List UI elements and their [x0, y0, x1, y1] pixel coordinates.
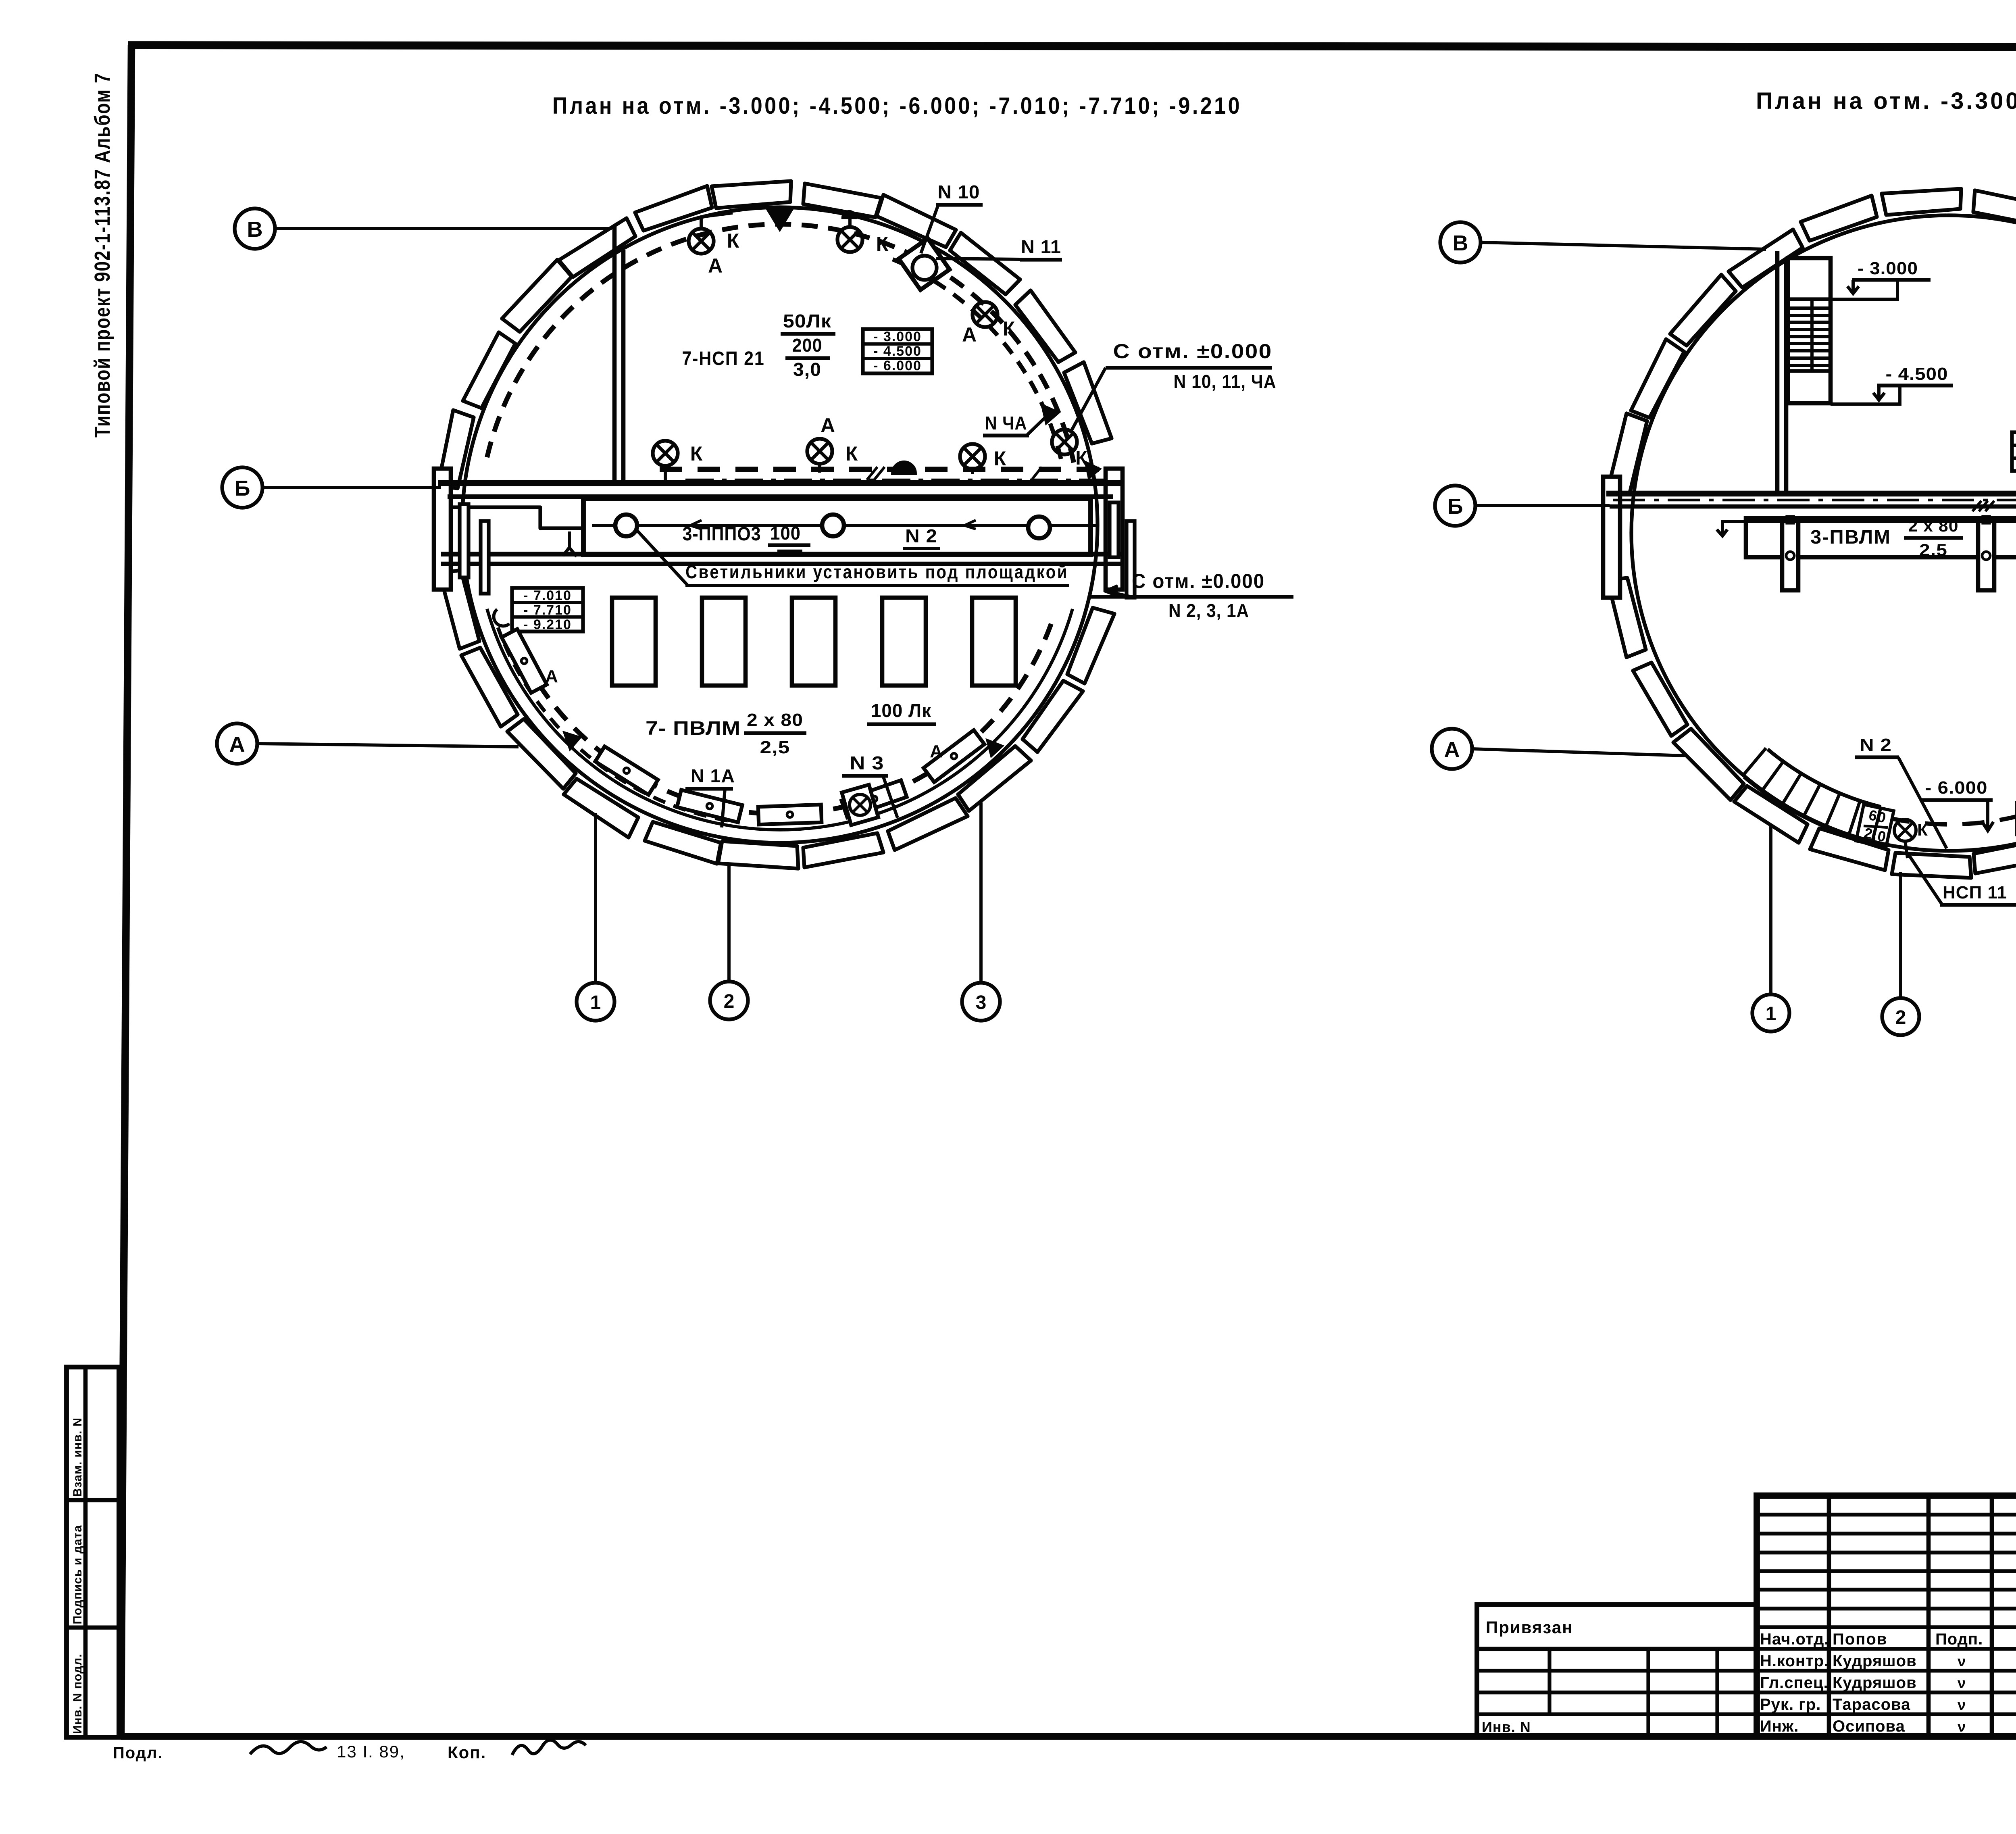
svg-text:А: А	[1444, 738, 1460, 762]
svg-text:3-ПППО3: 3-ПППО3	[683, 523, 761, 545]
svg-text:К: К	[846, 442, 858, 465]
svg-text:13 І. 89,: 13 І. 89,	[337, 1742, 405, 1761]
svg-text:А: А	[545, 667, 558, 686]
svg-text:N 2: N 2	[1860, 735, 1892, 755]
svg-text:План на отм. -3.000; -4.500;: План на отм. -3.000; -4.500; -6.000; -7.…	[552, 93, 1242, 119]
svg-text:С отм. ±0.000: С отм. ±0.000	[1113, 340, 1272, 363]
svg-text:К: К	[994, 447, 1006, 470]
svg-text:К: К	[690, 442, 703, 465]
svg-text:Рук. гр.: Рук. гр.	[1760, 1696, 1821, 1713]
svg-text:ν: ν	[1958, 1653, 1966, 1669]
svg-text:Инв. N подл.: Инв. N подл.	[71, 1654, 84, 1734]
svg-text:Коп.: Коп.	[448, 1743, 486, 1762]
svg-text:План на отм. -3.300; -4.000;: План на отм. -3.300; -4.000; -5.500	[1756, 88, 2016, 114]
svg-text:100: 100	[770, 523, 801, 544]
svg-text:2: 2	[724, 991, 735, 1012]
svg-text:- 4.500: - 4.500	[1886, 364, 1948, 384]
svg-text:- 6.000: - 6.000	[1925, 778, 1988, 798]
svg-text:Инв. N: Инв. N	[1482, 1719, 1531, 1735]
svg-text:2,5: 2,5	[760, 738, 790, 757]
svg-text:Типовой проект 902-1-113.87: Типовой проект 902-1-113.87 Альбом 7	[90, 73, 115, 438]
svg-text:N ЧА: N ЧА	[985, 413, 1027, 433]
svg-text:100 Лк: 100 Лк	[871, 700, 931, 721]
svg-text:2,5: 2,5	[1919, 540, 1947, 559]
svg-text:- 4.500: - 4.500	[873, 344, 922, 359]
svg-text:ν: ν	[1958, 1696, 1966, 1713]
svg-text:- 9.210: - 9.210	[523, 617, 572, 632]
svg-text:200: 200	[792, 335, 823, 356]
svg-text:Подл.: Подл.	[113, 1744, 163, 1762]
svg-text:Кудряшов: Кудряшов	[1833, 1674, 1917, 1692]
svg-text:3: 3	[976, 992, 987, 1013]
svg-text:Б: Б	[1447, 494, 1463, 519]
svg-text:N 3: N 3	[850, 752, 884, 773]
svg-text:Тарасова: Тарасова	[1833, 1696, 1910, 1713]
svg-text:А: А	[930, 742, 943, 761]
svg-text:В: В	[247, 217, 263, 242]
svg-text:В: В	[1453, 231, 1468, 255]
svg-text:Светильники установить под: Светильники установить под площадкой	[685, 561, 1068, 582]
svg-text:К: К	[1003, 317, 1015, 340]
svg-text:Гл.спец.: Гл.спец.	[1760, 1674, 1829, 1692]
svg-text:- 7.710: - 7.710	[523, 602, 572, 618]
svg-text:Кудряшов: Кудряшов	[1833, 1652, 1917, 1670]
svg-text:1: 1	[1766, 1003, 1776, 1025]
svg-text:Б: Б	[235, 476, 250, 500]
svg-text:7- ПВЛМ: 7- ПВЛМ	[646, 718, 741, 739]
svg-text:- 6.000: - 6.000	[873, 358, 922, 373]
svg-text:3,0: 3,0	[793, 359, 821, 380]
svg-text:50Лк: 50Лк	[783, 311, 831, 331]
svg-text:1: 1	[590, 992, 601, 1013]
svg-text:К: К	[727, 229, 739, 252]
svg-text:- 3.000: - 3.000	[873, 329, 922, 344]
svg-text:N 11: N 11	[1021, 236, 1061, 257]
svg-text:А: А	[229, 732, 245, 757]
svg-text:Подп.: Подп.	[1935, 1630, 1983, 1648]
svg-text:2: 2	[1895, 1007, 1906, 1028]
svg-text:- 7.010: - 7.010	[523, 588, 572, 603]
svg-text:Нач.отд.: Нач.отд.	[1760, 1630, 1829, 1648]
svg-text:Взам. инв. N: Взам. инв. N	[71, 1417, 84, 1497]
svg-text:N 2, 3, 1А: N 2, 3, 1А	[1168, 600, 1249, 621]
svg-text:ν: ν	[1958, 1675, 1966, 1691]
svg-text:Осипова: Осипова	[1833, 1717, 1905, 1735]
svg-text:2 х 80: 2 х 80	[1908, 516, 1959, 535]
svg-text:Подпись и дата: Подпись и дата	[71, 1525, 84, 1624]
svg-text:- 3.000: - 3.000	[1858, 258, 1918, 278]
svg-text:А: А	[821, 414, 835, 437]
svg-text:N 10: N 10	[938, 181, 980, 202]
svg-text:N 2: N 2	[905, 525, 937, 546]
svg-text:7-НСП 21: 7-НСП 21	[682, 348, 765, 369]
svg-text:N 10, 11, ЧА: N 10, 11, ЧА	[1174, 371, 1277, 392]
svg-text:Н.контр.: Н.контр.	[1760, 1652, 1829, 1670]
svg-text:N 1А: N 1А	[691, 765, 735, 786]
svg-text:А: А	[962, 323, 977, 346]
svg-text:Попов: Попов	[1833, 1630, 1887, 1648]
svg-text:2 х 80: 2 х 80	[747, 710, 803, 730]
svg-text:НСП 11: НСП 11	[1943, 883, 2007, 902]
svg-text:С отм. ±0.000: С отм. ±0.000	[1132, 570, 1265, 592]
svg-text:3-ПВЛМ: 3-ПВЛМ	[1810, 527, 1891, 548]
svg-text:К: К	[876, 233, 889, 255]
svg-text:А: А	[708, 254, 723, 277]
svg-text:ν: ν	[1958, 1718, 1966, 1735]
svg-text:Привязан: Привязан	[1486, 1618, 1573, 1637]
svg-text:Инж.: Инж.	[1760, 1717, 1799, 1735]
